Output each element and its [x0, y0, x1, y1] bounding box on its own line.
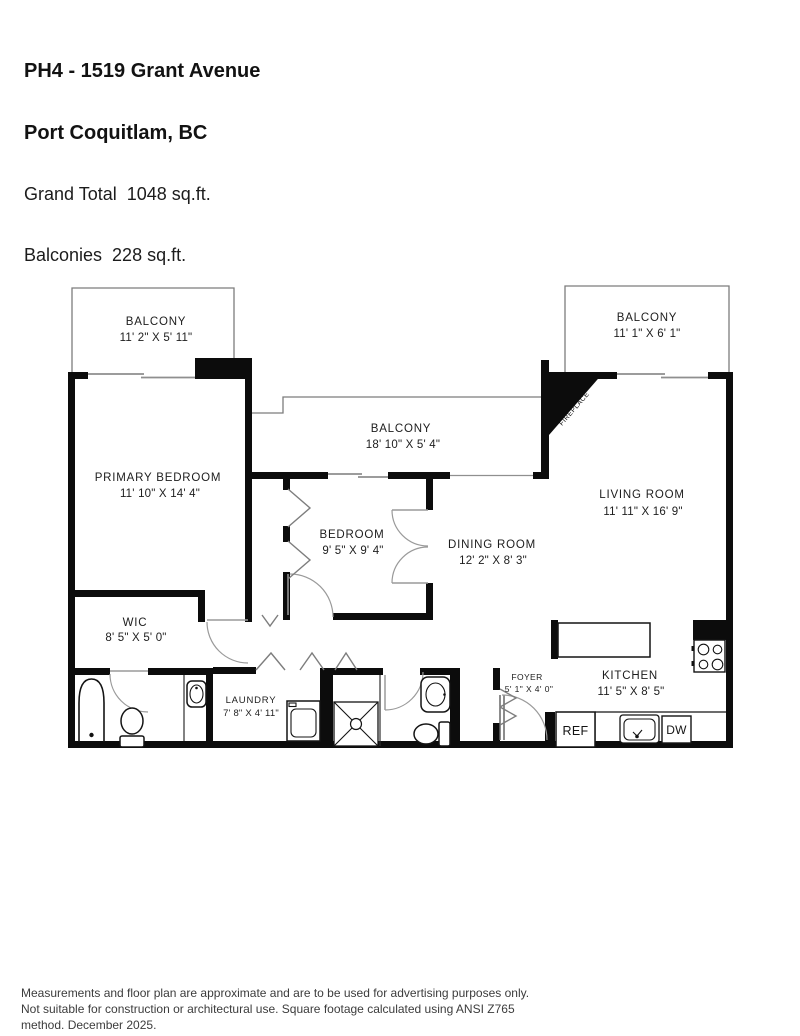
fridge-label: REF [563, 724, 589, 738]
shower-icon [334, 702, 378, 746]
room-label-kitchen: KITCHEN [602, 670, 658, 682]
room-label-dining-room: DINING ROOM [448, 539, 536, 551]
bathroom-sink-icon [187, 681, 206, 707]
room-dims-kitchen: 11' 5" X 8' 5" [598, 686, 665, 698]
disclaimer-text: Measurements and floor plan are approxim… [21, 986, 537, 1033]
room-label-balcony-top-right: BALCONY [617, 312, 678, 324]
room-dims-living-room: 11' 11" X 16' 9" [603, 506, 682, 518]
room-dims-wic: 8' 5" X 5' 0" [105, 632, 166, 644]
room-dims-balcony-top-right: 11' 1" X 6' 1" [614, 328, 681, 340]
kitchen-sink-icon [620, 715, 659, 743]
room-dims-balcony-top-left: 11' 2" X 5' 11" [120, 332, 193, 344]
kitchen-counter [595, 712, 726, 741]
room-label-wic: WIC [123, 617, 148, 629]
primary-slider [88, 374, 195, 378]
hall-closet-bifold-icon [335, 653, 357, 670]
foyer-closet-bifold-icon [500, 707, 516, 725]
bedroom-closet-bifold-icon [288, 541, 310, 579]
room-dims-balcony-center: 18' 10" X 5' 4" [366, 439, 440, 451]
bathtub-icon [79, 679, 104, 742]
toilet-icon [414, 722, 450, 746]
bedroom-closet-bifold-icon [288, 489, 310, 527]
room-dims-foyer: 5' 1" X 4' 0" [505, 684, 554, 694]
room-label-balcony-center: BALCONY [371, 423, 432, 435]
laundry-bifold-icon [256, 653, 285, 670]
room-label-laundry: LAUNDRY [226, 695, 277, 706]
washer-icon [287, 701, 320, 741]
stove-icon [692, 640, 726, 672]
room-label-bedroom: BEDROOM [319, 529, 384, 541]
toilet-icon [120, 708, 144, 747]
bedroom-double-doors [392, 510, 428, 583]
room-label-primary-bedroom: PRIMARY BEDROOM [95, 472, 222, 484]
dishwasher-label: DW [666, 723, 687, 737]
room-dims-laundry: 7' 8" X 4' 11" [223, 708, 279, 719]
room-dims-dining-room: 12' 2" X 8' 3" [459, 555, 527, 567]
kitchen-island [558, 623, 650, 657]
balcony-center-slider [328, 474, 388, 477]
living-slider [617, 374, 708, 378]
bedroom-door [288, 574, 333, 617]
room-label-living-room: LIVING ROOM [599, 489, 684, 501]
hall-closet-bifold-icon [262, 615, 278, 626]
room-label-foyer: FOYER [511, 672, 542, 682]
bathroom2-door [385, 672, 423, 710]
entry-door [500, 695, 547, 740]
room-label-balcony-top-left: BALCONY [126, 316, 187, 328]
room-dims-primary-bedroom: 11' 10" X 14' 4" [120, 488, 200, 500]
bathroom1-door [110, 671, 148, 712]
floor-plan: BALCONY 11' 2" X 5' 11" BALCONY 11' 1" X… [0, 0, 800, 1036]
laundry-bifold-icon [300, 653, 324, 670]
primary-bedroom-door [207, 620, 248, 663]
vanity-sink-icon [421, 677, 450, 712]
fixtures [79, 623, 726, 747]
room-dims-bedroom: 9' 5" X 9' 4" [322, 545, 383, 557]
closet-chevrons [256, 489, 516, 725]
